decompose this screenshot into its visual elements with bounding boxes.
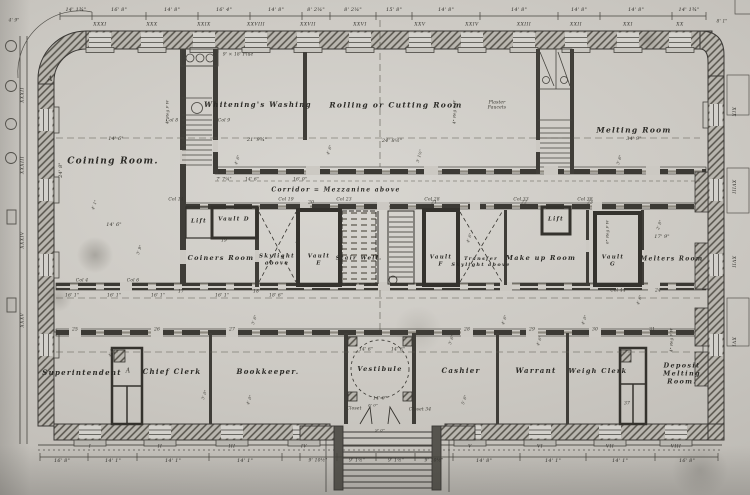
annotation: Closet 34 — [409, 407, 431, 412]
annotation: 37 — [624, 401, 630, 406]
make-up-room: Make up Room — [506, 255, 576, 263]
bottom-numeral: V — [468, 444, 472, 449]
vault-e: Vault E — [308, 253, 330, 266]
superintendent: Superintendent — [42, 369, 122, 377]
annotation: 4' 6" — [326, 145, 334, 156]
bottom-dim: 14' 1" — [165, 458, 181, 464]
annotation: 16' 1" — [151, 293, 165, 298]
annotation: 4' 6" — [501, 315, 509, 326]
annotation: 3' 0" — [201, 390, 209, 401]
annotation: Col 19 — [278, 197, 293, 202]
annotation: 6' 0" — [368, 404, 378, 409]
melting-room: Melting Room — [596, 126, 671, 135]
annotation: 22 — [521, 200, 527, 205]
top-dim: 14' 8" — [164, 7, 180, 13]
annotation: 24' 8" — [58, 162, 64, 177]
annotation: Col 4 — [76, 278, 88, 283]
top-numeral: XXIII — [517, 22, 531, 27]
annotation: 4' 6" — [234, 155, 242, 166]
annotation: Col 23 — [336, 197, 351, 202]
top-dim: 14' 8" — [268, 7, 284, 13]
annotation: 4' 6" — [636, 295, 644, 306]
rolling-cutting-room: Rolling or Cutting Room — [329, 101, 462, 110]
bottom-dim: 16' 8" — [54, 458, 70, 464]
annotation: 21 — [431, 200, 437, 205]
annotation: 16' 1" — [215, 293, 229, 298]
top-numeral: XXVII — [300, 22, 316, 27]
annotation: 4' 9" — [9, 18, 20, 23]
annotation: 25 — [72, 327, 78, 332]
top-dim: 14' 8" — [628, 7, 644, 13]
vault-f: Vault F — [430, 254, 452, 267]
vestibule: Vestibule — [357, 366, 402, 374]
top-numeral: XXXI — [93, 22, 106, 27]
annotation: 14' 6" — [108, 136, 123, 142]
annotation: 18' 6" — [269, 293, 283, 298]
lift-2: Lift — [548, 217, 564, 224]
annotation: 9' × 18' Flue — [223, 52, 254, 57]
top-numeral: XXIX — [197, 22, 210, 27]
top-dim: 8' 2¼" — [307, 7, 325, 13]
annotation: 14' 6" — [245, 177, 259, 182]
annotation: 17' 9" — [654, 234, 669, 240]
annotation: 31 — [649, 327, 655, 332]
annotation: 23 — [587, 200, 593, 205]
top-dim: 15' 8" — [386, 7, 402, 13]
annotation: 4" Reg F W — [166, 100, 171, 124]
bottom-numeral: II — [158, 444, 163, 449]
transfer-skylight: Transfer Skylight above — [451, 256, 510, 268]
right-numeral: XVII — [730, 256, 735, 268]
bottom-numeral: VI — [537, 444, 543, 449]
annotation: 4' 0" — [108, 347, 116, 358]
annotation: Col 6 — [127, 278, 139, 283]
annotation: 4" Reg F W — [670, 328, 675, 352]
annotation: 3' 6" — [616, 155, 624, 166]
annotation: 14' 6" — [106, 222, 121, 228]
annotation: A — [126, 367, 130, 374]
whitenings-washing: Whitening's Washing — [204, 101, 312, 109]
annotation: Col 14 — [168, 197, 183, 202]
left-numeral: XXXII — [20, 87, 25, 103]
top-dim: 14' 1¾" — [678, 7, 699, 13]
annotation: 16' 0" — [293, 177, 307, 182]
cashier: Cashier — [441, 367, 480, 375]
annotation: Col 44 — [610, 288, 625, 293]
left-numeral: XXXIII — [20, 156, 25, 174]
annotation: 24 — [655, 288, 661, 293]
annotation: Plaster Faucets — [488, 101, 506, 112]
annotation: 9' 0" — [375, 429, 385, 434]
annotation: 3' 6" — [251, 315, 259, 326]
top-numeral: XXIV — [465, 22, 478, 27]
annotation: Closet — [347, 406, 362, 411]
left-numeral: XXXV — [20, 313, 25, 328]
annotation: 4' 1" — [91, 200, 99, 211]
annotation: 14' 0" — [373, 396, 387, 401]
bottom-numeral: VII — [606, 444, 614, 449]
annotation: 2' 8" — [656, 220, 664, 231]
annotation: 28 — [464, 327, 470, 332]
annotation: 8' 1" — [717, 19, 728, 24]
vault-d: Vault D — [218, 217, 250, 224]
top-dim: 14' 8" — [571, 7, 587, 13]
annotation: 26 — [154, 327, 160, 332]
bottom-dim: 9' 1½" — [388, 458, 404, 463]
top-numeral: XXVIII — [247, 22, 265, 27]
bottom-dim: 14' 1" — [105, 458, 121, 464]
top-dim: 8' 2¼" — [344, 7, 362, 13]
vault-g: Vault G — [602, 254, 624, 267]
top-dim: 14' 8" — [438, 7, 454, 13]
top-numeral: XXV — [414, 22, 425, 27]
annotation: Col 9 — [218, 118, 230, 123]
top-dim: 16' 4" — [216, 7, 232, 13]
bottom-numeral: I — [89, 444, 91, 449]
bottom-dim: 14' 1" — [612, 458, 628, 464]
annotation: 4" Reg F W — [296, 220, 301, 244]
deposit-melting-room: Deposit Melting Room. — [648, 362, 716, 385]
bottom-dim: 9' 10½" — [424, 458, 443, 463]
melters-room: Melters Room — [641, 255, 704, 262]
top-dim: 14' 1¾" — [65, 7, 86, 13]
annotation: 17 — [178, 289, 184, 294]
annotation: 4' 6" — [536, 336, 544, 347]
right-numeral: XIX — [730, 107, 735, 117]
bottom-dim: 14' 1" — [237, 458, 253, 464]
top-numeral: XXI — [623, 22, 633, 27]
annotation: A — [47, 75, 52, 83]
annotation: 19 — [221, 238, 227, 243]
annotation: 5' 6" — [461, 395, 469, 406]
annotation: 4" Reg F W — [453, 100, 458, 124]
annotation: 14' 6" — [359, 347, 373, 352]
top-numeral: XXX — [146, 22, 157, 27]
labels-layer: Coining Room.Whitening's WashingRolling … — [0, 0, 750, 495]
annotation: 18 — [253, 289, 259, 294]
bottom-numeral: VIII — [671, 444, 682, 449]
annotation: 24' 8½" — [382, 138, 402, 144]
coining-room: Coining Room. — [67, 157, 159, 168]
weigh-clerk: Weigh Clerk — [569, 368, 628, 376]
right-numeral: XVIII — [730, 180, 735, 194]
bottom-dim: 14' 1" — [545, 458, 561, 464]
annotation: 7' 7¼" — [216, 177, 231, 182]
annotation: 4' 6" — [466, 233, 474, 244]
bottom-dim: 16' 8" — [679, 458, 695, 464]
annotation: 16' 1" — [107, 293, 121, 298]
bottom-dim: 14' 8" — [476, 458, 492, 464]
annotation: 29 — [529, 327, 535, 332]
chief-clerk: Chief Clerk — [143, 368, 202, 376]
bottom-dim: 9' 1½" — [349, 458, 365, 463]
top-dim: 16' 8" — [111, 7, 127, 13]
annotation: 30 — [592, 327, 598, 332]
top-numeral: XX — [676, 22, 683, 27]
coiners-room: Coiners Room — [188, 255, 255, 263]
annotation: 21' 9¾" — [247, 137, 267, 143]
corridor: Corridor = Mezzanine above — [271, 186, 400, 193]
annotation: 27 — [229, 327, 235, 332]
skylight-above: Skylight above — [259, 253, 295, 266]
annotation: 6" Reg F W — [606, 220, 611, 244]
lift-1: Lift — [191, 219, 207, 226]
bottom-numeral: III — [229, 444, 236, 449]
annotation: 3' 9" — [136, 245, 144, 256]
floorplan-canvas: Coining Room.Whitening's WashingRolling … — [0, 0, 750, 495]
right-numeral: XVI — [730, 337, 735, 347]
top-numeral: XXVI — [353, 22, 366, 27]
bottom-dim: 9' 10½" — [308, 458, 327, 463]
stair-well: Stair Well. — [336, 256, 383, 263]
top-numeral: XXII — [570, 22, 582, 27]
annotation: 14' 6" — [391, 347, 405, 352]
annotation: 4' 0" — [246, 395, 254, 406]
annotation: 3' 6" — [448, 335, 456, 346]
warrant: Warrant — [515, 367, 556, 375]
annotation: 34' 9" — [626, 136, 641, 142]
left-numeral: XXXIV — [20, 231, 25, 248]
annotation: 16' 1" — [65, 293, 79, 298]
bottom-numeral: IV — [301, 444, 307, 449]
annotation: 20 — [308, 200, 314, 205]
bookkeeper: Bookkeeper. — [237, 368, 300, 376]
annotation: 4' 0" — [581, 315, 589, 326]
annotation: 3' 1½" — [416, 149, 424, 164]
top-dim: 14' 8" — [511, 7, 527, 13]
